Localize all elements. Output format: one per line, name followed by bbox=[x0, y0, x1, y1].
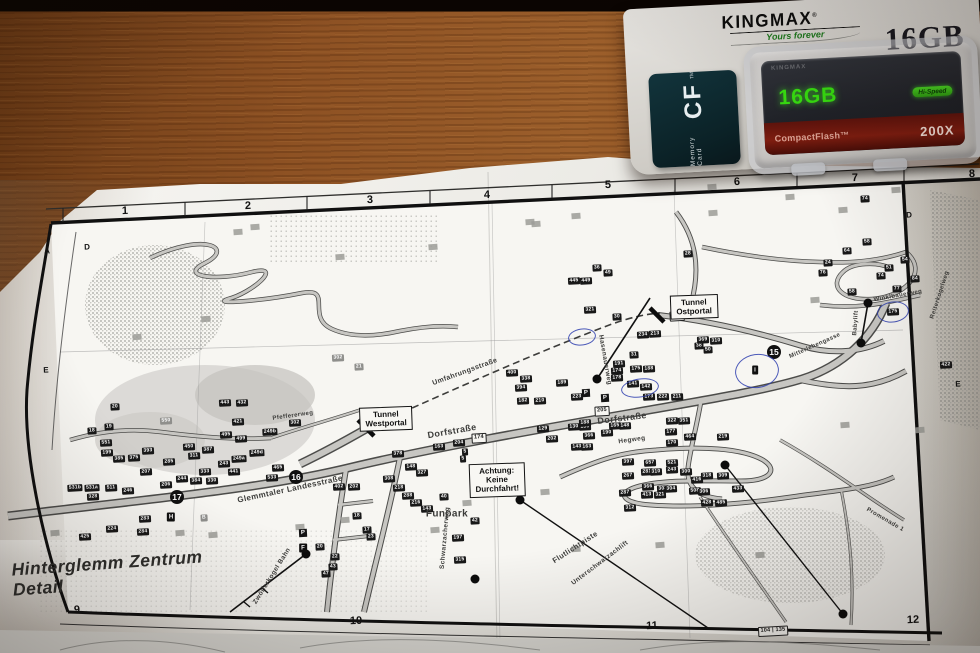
building-number-tag: 433 bbox=[732, 485, 744, 493]
building-number-tag: 211 bbox=[671, 393, 683, 401]
map-callout-box: Achtung: Keine Durchfahrt! bbox=[469, 462, 526, 497]
photo-scene: 181920551199385375393207531b531a51124632… bbox=[0, 0, 980, 653]
grid-label: 5 bbox=[605, 179, 612, 191]
building-number-tag: 84 bbox=[910, 275, 919, 282]
building-number-tag: 74 bbox=[860, 195, 869, 202]
registered-mark: ® bbox=[812, 12, 818, 19]
building-footprint bbox=[840, 422, 849, 429]
building-number-tag: 393 bbox=[142, 447, 154, 455]
poi-pictogram-icon: F bbox=[299, 544, 307, 553]
building-number-tag: 47 bbox=[321, 570, 330, 577]
building-number-tag: 54 bbox=[900, 256, 909, 263]
building-number-tag: 450 bbox=[183, 443, 195, 451]
building-number-tag: 49 bbox=[603, 269, 612, 276]
building-number-tag: 20 bbox=[110, 403, 119, 410]
poi-pictogram-icon: H bbox=[167, 513, 175, 522]
building-number-tag: 51 bbox=[884, 264, 893, 271]
grid-label: 8 bbox=[969, 168, 976, 180]
grid-label: 7 bbox=[852, 172, 859, 184]
grid-label: A bbox=[44, 246, 50, 255]
grid-label: 10 bbox=[350, 615, 363, 627]
grid-label: 6 bbox=[734, 176, 741, 188]
building-footprint bbox=[571, 213, 580, 220]
building-number-tag: 177 bbox=[665, 428, 677, 436]
building-footprint bbox=[755, 552, 764, 559]
grid-label: 3 bbox=[367, 194, 374, 206]
blister-tab-left bbox=[791, 162, 826, 176]
building-number-tag: 202 bbox=[546, 435, 558, 443]
building-footprint bbox=[655, 542, 664, 549]
street-label: Funpark bbox=[426, 509, 468, 520]
building-number-tag: 58 bbox=[862, 238, 871, 245]
lift-station-dot bbox=[516, 496, 525, 505]
building-footprint bbox=[233, 229, 242, 236]
blister-bubble: KINGMAX 16GB Hi-Speed CompactFlash™ 200X bbox=[743, 35, 980, 175]
grid-label: 4 bbox=[484, 189, 491, 201]
building-number-tag: 333 bbox=[199, 468, 211, 476]
building-number-tag: 310 bbox=[710, 337, 722, 345]
building-number-tag: 306 bbox=[698, 488, 710, 496]
building-number-tag: 465 bbox=[272, 464, 284, 472]
building-number-tag: 432 bbox=[236, 399, 248, 407]
building-number-tag: 315 bbox=[454, 556, 466, 564]
building-number-tag: 50 bbox=[703, 346, 712, 353]
building-footprint bbox=[175, 530, 184, 537]
building-number-tag: 531b bbox=[67, 484, 83, 492]
lift-station-dot bbox=[839, 610, 848, 619]
package-side-panel: Memory Card CF TM bbox=[648, 70, 741, 168]
building-number-tag: 284 bbox=[137, 528, 149, 536]
building-number-tag: 321 bbox=[584, 306, 596, 314]
building-footprint bbox=[707, 184, 716, 191]
building-number-tag: 58 bbox=[847, 288, 856, 295]
building-number-tag: 413 bbox=[641, 491, 653, 499]
building-number-tag: 449 bbox=[580, 277, 592, 285]
building-number-tag: 204 bbox=[453, 439, 465, 447]
building-footprint bbox=[838, 207, 847, 214]
building-number-tag: 499 bbox=[235, 435, 247, 443]
lift-station-dot bbox=[864, 299, 873, 308]
blister-tab-right bbox=[873, 158, 908, 172]
map-callout-box: Tunnel Ostportal bbox=[670, 294, 718, 320]
building-number-tag: 178 bbox=[611, 374, 623, 382]
building-number-tag: 495 bbox=[220, 431, 232, 439]
building-number-tag: 328 bbox=[87, 493, 99, 501]
building-number-tag: 551 bbox=[100, 439, 112, 447]
side-label-small: Memory Card bbox=[688, 123, 704, 166]
building-number-tag: 20 bbox=[315, 543, 324, 550]
building-number-tag: 224 bbox=[106, 525, 118, 533]
building-number-tag: 308 bbox=[383, 475, 395, 483]
building-number-tag: 302 bbox=[332, 354, 344, 362]
parking-icon: P bbox=[299, 529, 307, 537]
building-number-tag: 74 bbox=[876, 272, 885, 279]
building-number-tag: 219 bbox=[717, 433, 729, 441]
grid-label: D bbox=[84, 242, 90, 251]
grid-label: E bbox=[43, 365, 49, 374]
grid-label: 1 bbox=[122, 205, 129, 217]
cf-card-type: CompactFlash™ bbox=[774, 130, 849, 144]
cf-card-speed: 200X bbox=[920, 122, 955, 139]
building-number-tag: 397 bbox=[622, 458, 634, 466]
building-number-tag: 394 bbox=[515, 384, 527, 392]
grid-label: D bbox=[906, 210, 912, 219]
building-footprint bbox=[250, 224, 259, 231]
building-footprint bbox=[201, 316, 210, 323]
building-number-tag: 366 bbox=[583, 432, 595, 440]
building-number-tag: 283 bbox=[139, 515, 151, 523]
building-number-tag: 402 bbox=[333, 483, 345, 491]
parking-icon: P bbox=[582, 389, 590, 397]
building-footprint bbox=[132, 334, 141, 341]
building-number-tag: 207 bbox=[140, 468, 152, 476]
building-footprint bbox=[785, 194, 794, 201]
building-number-tag: 330 bbox=[206, 477, 218, 485]
building-number-tag: 318 bbox=[701, 472, 713, 480]
building-number-tag: 443 bbox=[219, 399, 231, 407]
building-number-tag: 104 | 135 bbox=[758, 625, 788, 636]
building-number-tag: 202 bbox=[348, 483, 360, 491]
building-number-tag: 441 bbox=[228, 468, 240, 476]
grid-label: 9 bbox=[74, 604, 81, 616]
building-number-tag: 40 bbox=[439, 493, 448, 500]
building-number-tag: 304 bbox=[665, 485, 677, 493]
building-number-tag: 338 bbox=[520, 375, 532, 383]
building-number-tag: 464 bbox=[684, 433, 696, 441]
building-number-tag: 244 bbox=[176, 475, 188, 483]
building-number-tag: 206 bbox=[160, 481, 172, 489]
building-number-tag: 351 bbox=[678, 417, 690, 425]
building-footprint bbox=[208, 532, 217, 539]
building-number-tag: 445 bbox=[568, 277, 580, 285]
building-number-tag: 42 bbox=[470, 517, 479, 524]
building-number-tag: 285 bbox=[163, 458, 175, 466]
building-number-tag: 369 bbox=[697, 336, 709, 344]
lift-station-dot bbox=[721, 461, 730, 470]
building-number-tag: 174 bbox=[471, 433, 486, 443]
building-number-tag: 249a bbox=[231, 455, 246, 463]
building-footprint bbox=[915, 427, 924, 434]
building-number-tag: 243 bbox=[666, 466, 678, 474]
building-number-tag: 21 bbox=[354, 363, 363, 370]
building-number-tag: 422 bbox=[940, 361, 952, 369]
building-footprint bbox=[340, 517, 349, 524]
side-panel-text: Memory Card CF TM bbox=[678, 71, 711, 166]
side-label-big: CF bbox=[679, 82, 709, 119]
building-footprint bbox=[50, 530, 59, 537]
building-number-tag: 387 bbox=[202, 446, 214, 454]
building-number-tag: 327 bbox=[416, 469, 428, 477]
building-number-tag: 213 bbox=[649, 330, 661, 338]
building-number-tag: 199 bbox=[101, 449, 113, 457]
building-number-tag: 485 bbox=[715, 499, 727, 507]
building-number-tag: 189 bbox=[556, 379, 568, 387]
hi-speed-badge: Hi-Speed bbox=[912, 85, 953, 97]
building-number-tag: 531a bbox=[84, 484, 99, 492]
building-number-tag: 148 bbox=[619, 422, 631, 430]
building-number-tag: 243 bbox=[218, 460, 230, 468]
building-number-tag: 378 bbox=[392, 450, 404, 458]
building-number-tag: 18 bbox=[87, 427, 96, 434]
building-number-tag: 249d bbox=[249, 449, 265, 457]
building-number-tag: 550 bbox=[160, 417, 172, 425]
building-footprint bbox=[708, 210, 717, 217]
building-footprint bbox=[335, 254, 344, 261]
grid-label: 11 bbox=[646, 620, 658, 632]
building-number-tag: 234 bbox=[637, 331, 649, 339]
building-number-tag: 246 bbox=[122, 487, 134, 495]
building-footprint bbox=[531, 221, 540, 228]
building-number-tag: 163 bbox=[433, 443, 445, 451]
lift-station-dot bbox=[471, 575, 480, 584]
building-number-tag: 28 bbox=[683, 250, 692, 257]
map-callout-box: Tunnel Westportal bbox=[359, 406, 413, 432]
cf-card-emboss: KINGMAX bbox=[771, 64, 807, 72]
building-number-tag: 287 bbox=[619, 489, 631, 497]
building-number-tag: 64 bbox=[842, 247, 851, 254]
building-number-tag: 511 bbox=[105, 484, 117, 492]
building-footprint bbox=[428, 244, 437, 251]
building-number-tag: 400 bbox=[506, 369, 518, 377]
building-number-tag: 188 bbox=[643, 365, 655, 373]
building-number-tag: 300 bbox=[680, 468, 692, 476]
building-number-tag: 31 bbox=[629, 351, 638, 358]
building-number-tag: 188 bbox=[579, 419, 591, 427]
building-number-tag: 5 bbox=[460, 455, 466, 462]
memory-card-package: KINGMAX® Yours forever 16GB Memory Card … bbox=[623, 0, 980, 175]
parking-icon: P bbox=[601, 394, 609, 402]
grid-label: E bbox=[955, 379, 961, 388]
building-number-tag: 302 bbox=[289, 419, 301, 427]
building-number-tag: 425 bbox=[79, 533, 91, 541]
poi-number-badge: 16 bbox=[289, 470, 303, 484]
lift-station-dot bbox=[593, 375, 602, 384]
building-number-tag: 267 bbox=[622, 472, 634, 480]
building-number-tag: 190 bbox=[601, 429, 613, 437]
building-number-tag: 222 bbox=[657, 393, 669, 401]
building-number-tag: 310 bbox=[650, 468, 662, 476]
building-number-tag: 22 bbox=[330, 553, 339, 560]
building-number-tag: 76 bbox=[818, 269, 827, 276]
building-number-tag: 311 bbox=[188, 452, 200, 460]
building-number-tag: 366 bbox=[642, 483, 654, 491]
building-number-tag: 533 bbox=[266, 474, 278, 482]
poi-number-badge: 17 bbox=[170, 490, 184, 504]
building-number-tag: 309 bbox=[717, 472, 729, 480]
building-footprint bbox=[540, 489, 549, 496]
building-number-tag: 218 bbox=[393, 484, 405, 492]
building-number-tag: 421 bbox=[232, 418, 244, 426]
building-number-tag: 249b bbox=[262, 428, 278, 436]
cf-card: KINGMAX 16GB Hi-Speed CompactFlash™ 200X bbox=[761, 51, 966, 155]
building-number-tag: 384 bbox=[190, 477, 202, 485]
building-number-tag: 322 bbox=[666, 417, 678, 425]
grid-label: 2 bbox=[245, 200, 252, 212]
building-number-tag: 657 bbox=[644, 459, 656, 467]
grid-label: 12 bbox=[907, 614, 920, 626]
building-number-tag: 24 bbox=[823, 259, 832, 266]
building-number-tag: 170 bbox=[666, 439, 678, 447]
building-number-tag: 30 bbox=[612, 313, 621, 320]
lift-station-dot bbox=[857, 339, 866, 348]
building-number-tag: 375 bbox=[128, 454, 140, 462]
building-number-tag: 18 bbox=[352, 512, 361, 519]
building-number-tag: 428 bbox=[701, 499, 713, 507]
building-number-tag: 19 bbox=[104, 423, 113, 430]
building-footprint bbox=[430, 527, 439, 534]
building-number-tag: 210 bbox=[534, 397, 546, 405]
building-footprint bbox=[810, 297, 819, 304]
building-number-tag: 23 bbox=[366, 533, 375, 540]
building-number-tag: 321 bbox=[654, 491, 666, 499]
building-number-tag: 36 bbox=[592, 264, 601, 271]
building-number-tag: 385 bbox=[113, 455, 125, 463]
building-number-tag: B bbox=[200, 514, 207, 521]
building-footprint bbox=[462, 500, 471, 507]
cf-card-red-band: CompactFlash™ 200X bbox=[764, 113, 965, 155]
building-footprint bbox=[891, 187, 900, 194]
building-number-tag: 312 bbox=[624, 504, 636, 512]
side-label-tm: TM bbox=[689, 72, 695, 80]
building-number-tag: 129 bbox=[537, 425, 549, 433]
building-number-tag: 182 bbox=[517, 397, 529, 405]
building-number-tag: 163 bbox=[581, 443, 593, 451]
building-number-tag: 175 bbox=[630, 365, 642, 373]
building-number-tag: 197 bbox=[452, 534, 464, 542]
cf-card-capacity: 16GB bbox=[778, 83, 838, 110]
